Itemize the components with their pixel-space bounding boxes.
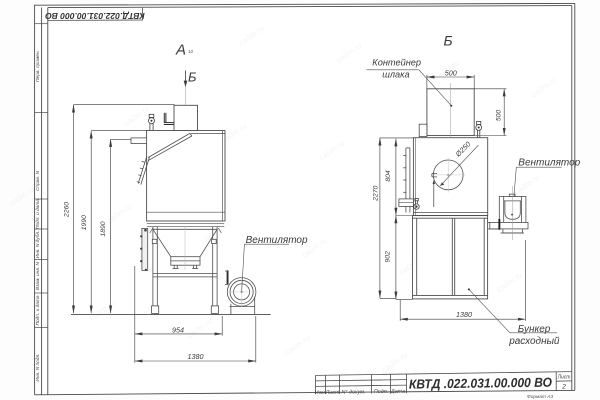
svg-text:Контейнер: Контейнер: [372, 58, 421, 68]
svg-text:Бункер: Бункер: [518, 324, 551, 335]
svg-text:Б: Б: [444, 33, 453, 49]
svg-text:Вентилятор: Вентилятор: [518, 157, 580, 168]
svg-text:Взам. инв. N: Взам. инв. N: [35, 262, 41, 290]
svg-text:КВТД.022.031.00.000 ВО: КВТД.022.031.00.000 ВО: [45, 11, 145, 21]
svg-text:1890: 1890: [100, 221, 107, 236]
svg-text:2: 2: [561, 384, 566, 391]
svg-text:Дата: Дата: [390, 389, 405, 395]
svg-text:500: 500: [445, 69, 457, 78]
svg-text:Инв. N подл.: Инв. N подл.: [35, 353, 41, 381]
svg-text:шлака: шлака: [382, 69, 409, 79]
svg-text:Лист: Лист: [557, 375, 571, 381]
svg-text:1380: 1380: [188, 352, 204, 361]
svg-text:2260: 2260: [64, 202, 71, 218]
svg-text:Перв. примен.: Перв. примен.: [35, 50, 41, 82]
svg-text:Б: Б: [188, 70, 197, 85]
svg-text:Подп.: Подп.: [374, 389, 388, 395]
svg-text:Подп. и дата: Подп. и дата: [35, 199, 41, 229]
svg-text:КВТД .022.031.00.000 ВО: КВТД .022.031.00.000 ВО: [409, 375, 552, 392]
svg-text:1380: 1380: [456, 310, 472, 319]
svg-text:А: А: [175, 42, 186, 59]
svg-text:1990: 1990: [81, 215, 88, 230]
svg-text:N° докум.: N° докум.: [341, 389, 365, 395]
svg-text:2270: 2270: [372, 186, 379, 202]
svg-text:Инв. N дубл.: Инв. N дубл.: [35, 231, 41, 259]
svg-text:902: 902: [385, 251, 392, 263]
svg-text:Лист: Лист: [325, 390, 340, 396]
svg-text:Справ. N: Справ. N: [35, 170, 41, 191]
svg-text:10: 10: [188, 49, 194, 54]
svg-text:804: 804: [385, 170, 392, 182]
svg-text:Подп. и дата: Подп. и дата: [35, 295, 41, 325]
svg-text:954: 954: [172, 325, 184, 334]
svg-text:500: 500: [496, 110, 503, 122]
svg-text:Вентилятор: Вентилятор: [246, 235, 308, 246]
svg-text:Формат А3: Формат А3: [527, 394, 554, 400]
svg-text:расходный: расходный: [508, 336, 560, 347]
